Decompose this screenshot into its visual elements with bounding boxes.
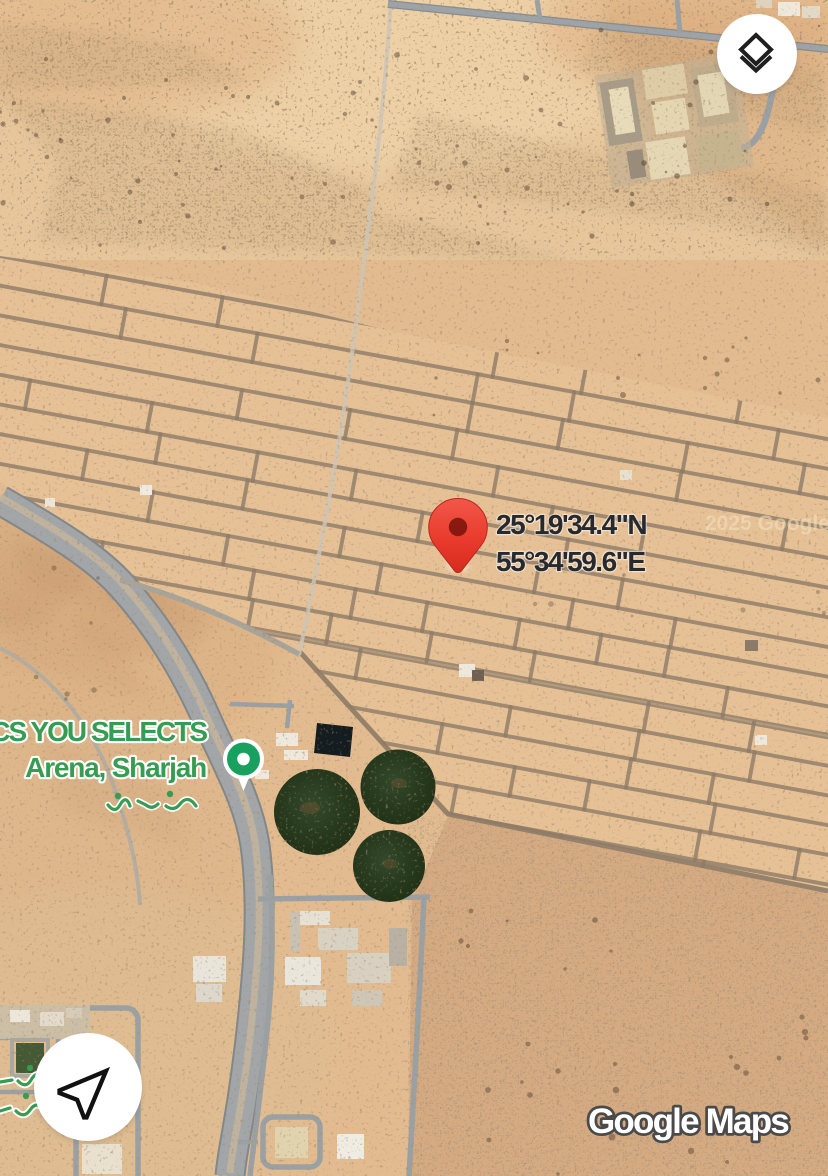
svg-text:2025 Google: 2025 Google <box>705 512 828 535</box>
svg-text:25°19'34.4"N: 25°19'34.4"N <box>496 509 646 540</box>
svg-text:Arena, Sharjah: Arena, Sharjah <box>25 752 206 783</box>
svg-text:55°34'59.6"E: 55°34'59.6"E <box>496 546 645 577</box>
svg-text:CS YOU SELECTS: CS YOU SELECTS <box>0 716 207 747</box>
svg-text:Google Maps: Google Maps <box>588 1102 789 1141</box>
